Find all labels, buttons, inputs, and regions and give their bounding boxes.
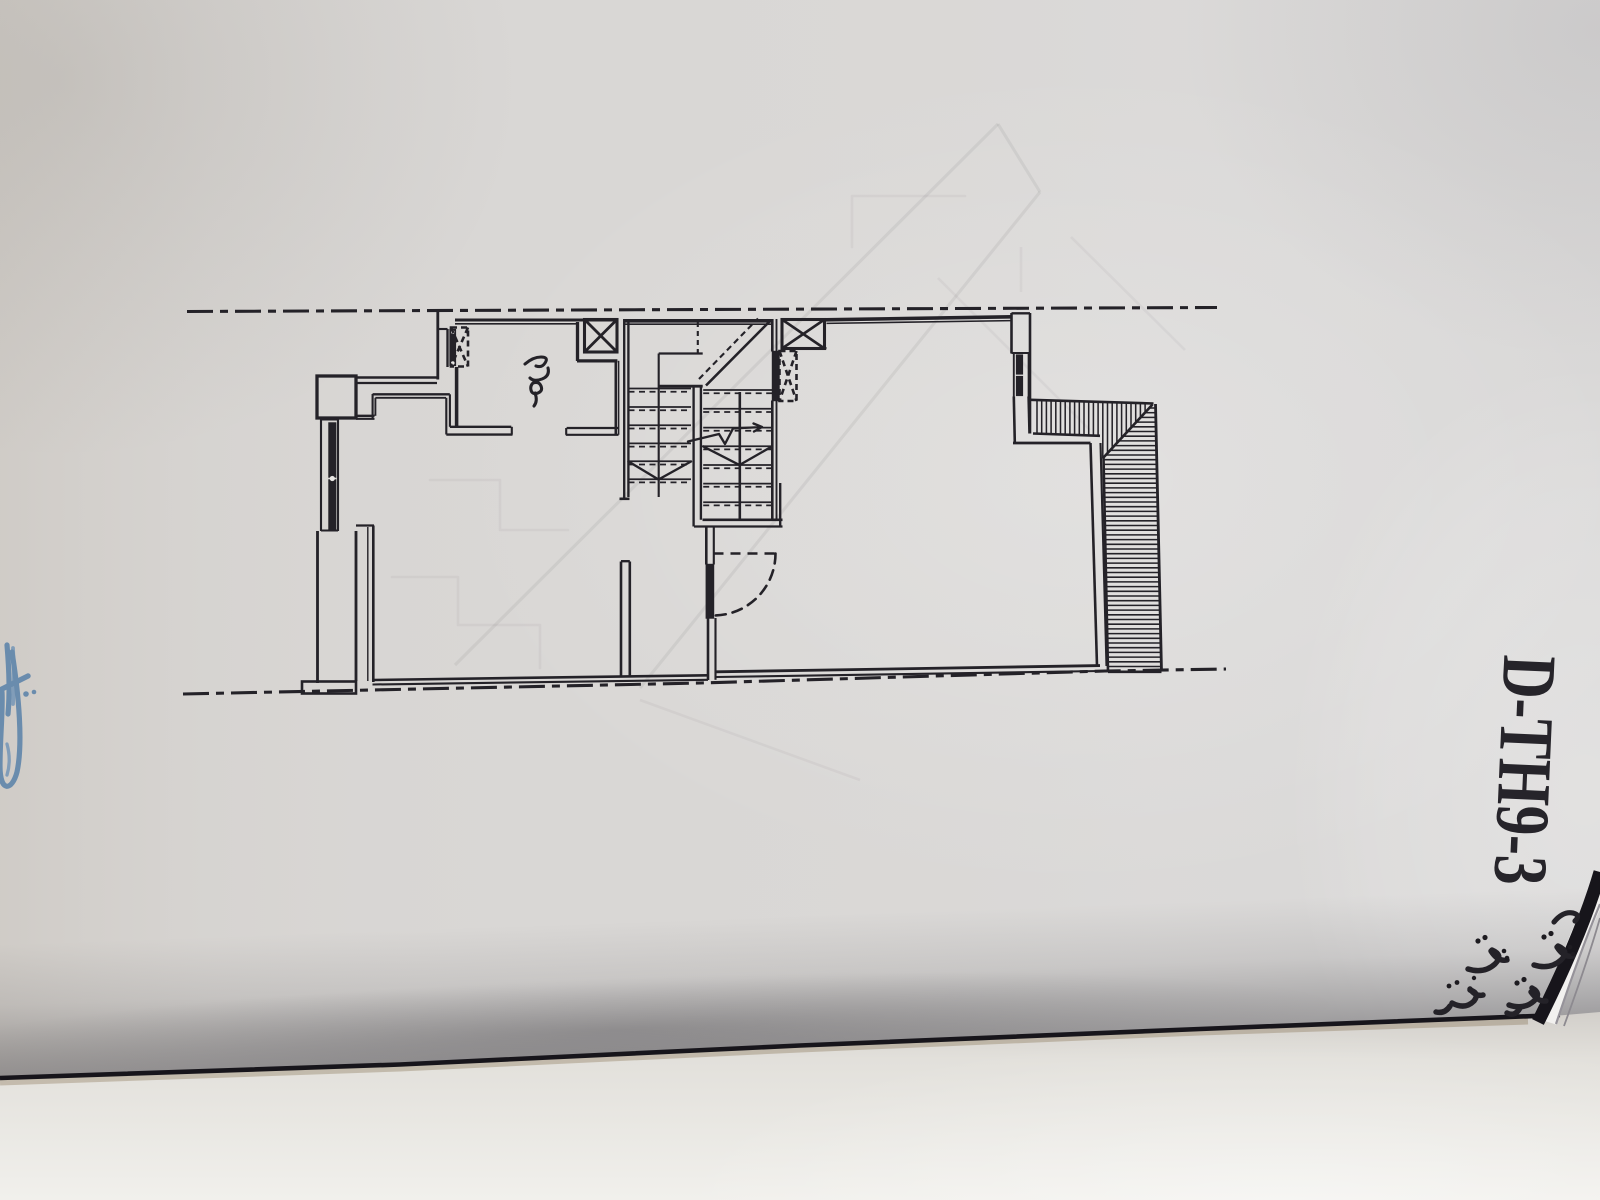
svg-text:D-TH9-3: D-TH9-3 [1478, 654, 1573, 887]
